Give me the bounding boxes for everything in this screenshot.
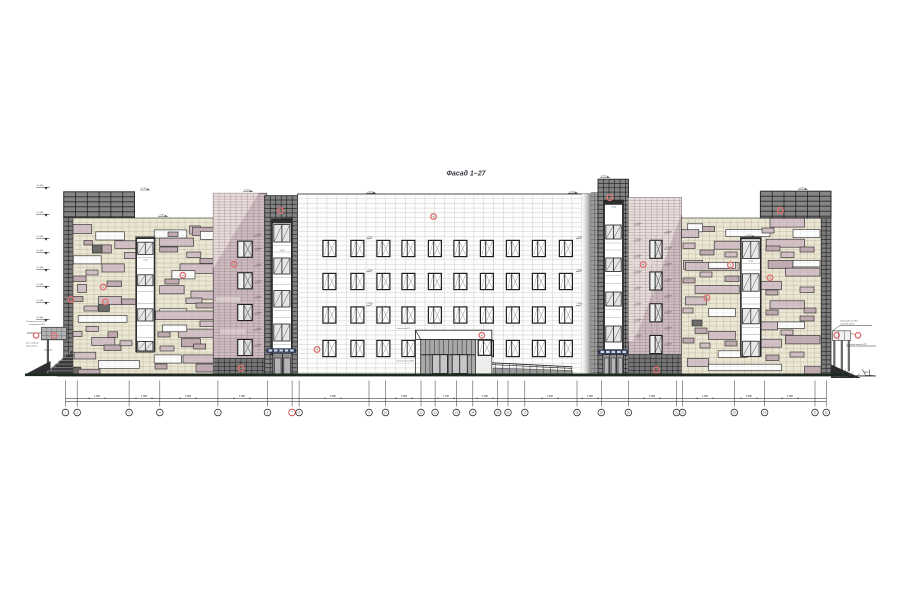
svg-text:+22.800: +22.800 [569,191,575,193]
svg-text:+0.000: +0.000 [256,344,261,346]
svg-text:+0.000: +0.000 [256,281,261,283]
svg-text:2 580: 2 580 [746,395,753,398]
svg-text:+21.600: +21.600 [36,236,43,238]
svg-text:+21.600: +21.600 [36,284,43,286]
svg-text:верх отметки: верх отметки [26,346,37,348]
svg-text:+3.30: +3.30 [577,270,582,272]
svg-text:+0.000: +0.000 [635,223,640,225]
svg-text:4 380: 4 380 [141,395,148,398]
svg-text:1 780: 1 780 [443,395,450,398]
svg-text:+0.000: +0.000 [666,343,671,345]
svg-text:+19.800: +19.800 [159,215,165,217]
svg-text:+22.300: +22.300 [141,188,147,190]
svg-text:+24.000: +24.000 [244,190,250,192]
svg-text:4 480: 4 480 [547,395,554,398]
svg-text:+21.600: +21.600 [36,212,43,214]
svg-text:+0.000: +0.000 [666,247,671,249]
svg-text:4 380: 4 380 [94,395,101,398]
svg-text:Наружный блок ИП1: Наружный блок ИП1 [841,320,858,323]
svg-text:+0.000: +0.000 [635,239,640,241]
svg-text:+21.600: +21.600 [36,267,43,269]
svg-text:Рекламная констр. ИП1: Рекламная констр. ИП1 [27,321,47,323]
svg-text:+22.800: +22.800 [367,191,373,193]
svg-text:+3.30: +3.30 [577,303,582,305]
svg-text:+0.000: +0.000 [256,234,261,236]
svg-text:+0.00: +0.00 [611,207,616,209]
svg-text:+0.000: +0.000 [666,279,671,281]
svg-text:Фасад 1–27: Фасад 1–27 [447,170,487,178]
svg-text:4 380: 4 380 [702,395,709,398]
svg-text:-0.00: -0.00 [143,259,147,261]
svg-text:+0.000: +0.000 [666,263,671,265]
svg-text:+0.000: +0.000 [635,287,640,289]
svg-text:4 080: 4 080 [649,395,656,398]
svg-text:в обрамлении ИП2: в обрамлении ИП2 [29,324,45,326]
svg-text:блок ИП2 агрегат: блок ИП2 агрегат [841,323,856,325]
svg-text:+0.000: +0.000 [256,248,261,250]
svg-text:6 980: 6 980 [330,395,337,398]
svg-text:+3.30: +3.30 [367,270,372,272]
svg-text:+3.30: +3.30 [367,303,372,305]
svg-text:+0.000: +0.000 [666,295,671,297]
svg-text:2 980: 2 980 [401,395,408,398]
svg-text:+0.000: +0.000 [635,255,640,257]
svg-text:+21.600: +21.600 [36,250,43,252]
svg-text:+0.000: +0.000 [256,312,261,314]
svg-text:-0.00: -0.00 [749,261,753,263]
svg-text:Наружный эвакуац. ИТП: Наружный эвакуац. ИТП [847,343,868,346]
svg-text:+3.30: +3.30 [577,237,582,239]
svg-text:+21.600: +21.600 [36,185,43,187]
svg-text:+0.000: +0.000 [256,296,261,298]
svg-text:+0.000: +0.000 [635,271,640,273]
svg-text:низ +4.150 отм.: низ +4.150 отм. [26,343,39,345]
svg-text:+21.600: +21.600 [36,317,43,319]
svg-text:+0.000: +0.000 [256,328,261,330]
svg-text:+22.300: +22.300 [799,188,805,190]
svg-text:металлокассета ИП2: металлокассета ИП2 [397,361,415,363]
svg-text:+0.000: +0.000 [256,264,261,266]
svg-text:+0.000: +0.000 [635,335,640,337]
svg-text:4 380: 4 380 [239,395,246,398]
svg-text:+0.000: +0.000 [666,327,671,329]
svg-text:+0.000: +0.000 [666,311,671,313]
svg-text:4 980: 4 980 [185,395,192,398]
svg-text:4 080: 4 080 [787,395,794,398]
svg-text:+0.000: +0.000 [666,231,671,233]
svg-text:Фасад-план.ИП1: Фасад-план.ИП1 [397,327,411,330]
svg-text:+0.00: +0.00 [280,250,285,252]
svg-text:+21.600: +21.600 [36,300,43,302]
svg-text:2 080: 2 080 [587,395,594,398]
svg-text:+21.600: +21.600 [284,216,290,218]
svg-text:+3.30: +3.30 [367,237,372,239]
svg-text:2 080: 2 080 [482,395,489,398]
svg-text:+24.500: +24.500 [601,176,607,178]
svg-text:+0.000: +0.000 [635,319,640,321]
svg-text:+19.800: +19.800 [746,235,752,237]
svg-text:+0.000: +0.000 [635,303,640,305]
